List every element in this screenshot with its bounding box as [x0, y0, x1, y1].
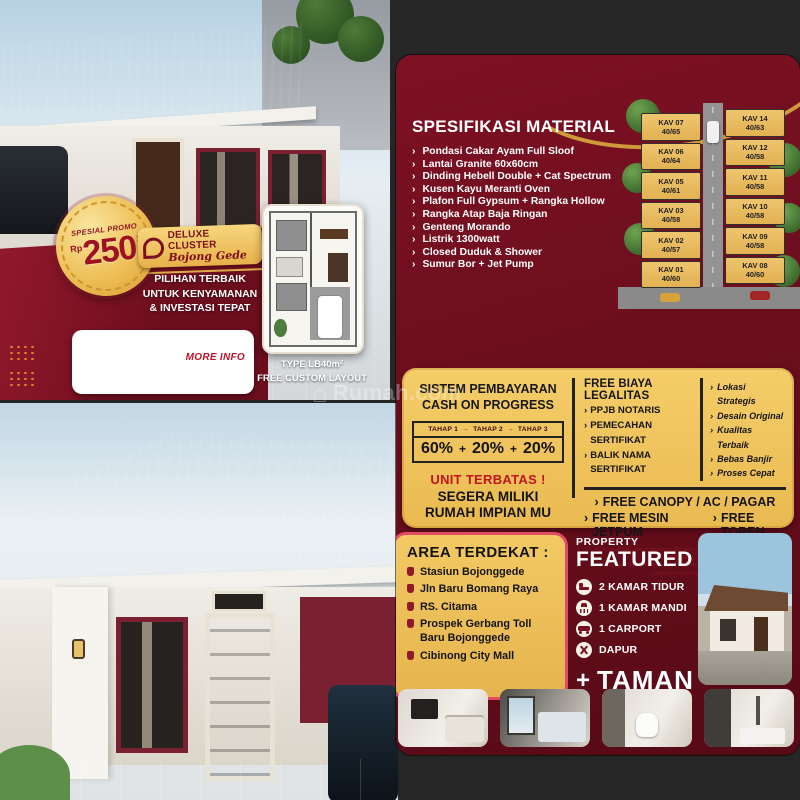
car-icon	[576, 621, 592, 637]
cta-line2: RUMAH IMPIAN MU	[412, 505, 564, 521]
feature-row: 1 KAMAR MANDI	[576, 600, 704, 616]
lot-kav: KAV 14	[742, 114, 767, 123]
nearby-area-text: Stasiun Bojonggede	[420, 565, 524, 579]
brand-banner: DELUXE CLUSTER Bojong Gede	[137, 224, 262, 268]
feature-row: 1 CARPORT	[576, 621, 704, 637]
house-door	[205, 613, 275, 781]
floorplan-caption: TYPE LB40m² FREE CUSTOM LAYOUT	[250, 358, 374, 386]
contact-info-box: MORE INFO	[72, 330, 254, 394]
lot-kav: KAV 07	[658, 118, 683, 127]
legal-item-text: PEMECAHAN SERTIFIKAT	[590, 419, 695, 449]
lot-size: 40/60	[746, 270, 765, 279]
spec-item-text: Lantai Granite 60x60cm	[422, 159, 538, 172]
specs-poster: SPESIFIKASI MATERIAL › Pondasi Cakar Aya…	[396, 55, 800, 755]
floorplan-bed	[276, 220, 307, 251]
siteplan-lot: KAV 09 40/58	[725, 227, 785, 255]
siteplan-road-horizontal	[618, 287, 800, 309]
interior-photos-row	[398, 689, 794, 747]
lot-kav: KAV 01	[658, 265, 683, 274]
spec-item-text: Genteng Morando	[422, 222, 510, 235]
lot-kav: KAV 03	[658, 206, 683, 215]
stage-label: TAHAP 1	[428, 426, 458, 433]
divider	[584, 487, 786, 490]
spec-item-text: Listrik 1300watt	[422, 234, 499, 247]
spec-item: › Plafon Full Gypsum + Rangka Hollow	[412, 196, 644, 209]
legal-item-text: PPJB NOTARIS	[590, 404, 660, 419]
nearby-area-item: Jln Baru Bomang Raya	[407, 582, 557, 596]
floorplan-car	[317, 295, 343, 339]
spec-list: › Pondasi Cakar Ayam Full Sloof › Lantai…	[412, 146, 644, 272]
chevron-bullet-icon: ›	[584, 511, 588, 539]
photo-roof	[704, 585, 788, 611]
floorplan-plant	[274, 319, 287, 337]
siteplan-lot: KAV 03 40/58	[641, 202, 701, 230]
floorplan-wall	[310, 213, 312, 287]
lot-size: 40/60	[662, 274, 681, 283]
advantage-item: › Kualitas Terbaik	[710, 423, 786, 452]
tagline-line: & INVESTASI TEPAT	[134, 301, 266, 316]
spec-item-text: Plafon Full Gypsum + Rangka Hollow	[422, 196, 604, 209]
lot-kav: KAV 06	[658, 147, 683, 156]
lot-size: 40/58	[746, 182, 765, 191]
advantage-item: › Bebas Banjir	[710, 452, 786, 466]
stage-label: TAHAP 3	[518, 426, 548, 433]
lot-size: 40/58	[746, 211, 765, 220]
spec-item-text: Dinding Hebell Double + Cat Spectrum	[422, 171, 611, 184]
lot-size: 40/63	[746, 123, 765, 132]
map-pin-icon	[407, 651, 414, 660]
feature-row: 2 KAMAR TIDUR	[576, 579, 704, 595]
lot-size: 40/57	[662, 245, 681, 254]
siteplan-lot: KAV 07 40/65	[641, 113, 701, 141]
nearby-area-title: AREA TERDEKAT :	[407, 544, 557, 561]
spec-item: › Dinding Hebell Double + Cat Spectrum	[412, 171, 644, 184]
property-featured-section: PROPERTY FEATURED 2 KAMAR TIDUR 1 KAMAR …	[576, 536, 704, 696]
chevron-bullet-icon: ›	[710, 466, 713, 480]
payment-title-line2: CASH ON PROGRESS	[412, 397, 564, 413]
badge-number: 250	[81, 231, 138, 270]
advantages-list: › Lokasi Strategis › Desain Original	[710, 380, 786, 481]
plus-icon: +	[459, 442, 466, 456]
spec-item: › Pondasi Cakar Ayam Full Sloof	[412, 146, 644, 159]
siteplan-lot: KAV 02 40/57	[641, 231, 701, 259]
photo-window	[720, 619, 736, 641]
freebies-item2: FREE MESIN JETPUM	[592, 511, 699, 539]
spec-item: › Kusen Kayu Meranti Oven	[412, 184, 644, 197]
chevron-bullet-icon: ›	[710, 423, 713, 452]
advantage-item-text: Kualitas Terbaik	[717, 423, 786, 452]
nearby-area-text: RS. Citama	[420, 600, 477, 614]
chevron-bullet-icon: ›	[412, 234, 415, 247]
photo-exterior	[698, 533, 792, 685]
chevron-bullet-icon: ›	[584, 449, 587, 479]
photo-ground	[698, 651, 792, 685]
lot-kav: KAV 11	[743, 173, 768, 182]
nearby-area-item: RS. Citama	[407, 600, 557, 614]
siteplan-lots-right: KAV 14 40/63 KAV 12 40/58 KAV 11 40/58	[725, 109, 785, 284]
lot-size: 40/61	[662, 186, 681, 195]
car-icon	[707, 121, 719, 143]
advantage-item: › Desain Original	[710, 409, 786, 423]
map-pin-icon	[407, 567, 414, 576]
advantage-item-text: Bebas Banjir	[717, 452, 772, 466]
stage-label: TAHAP 2	[473, 426, 503, 433]
house-pillar	[52, 587, 108, 779]
siteplan-lot: KAV 14 40/63	[725, 109, 785, 137]
chevron-bullet-icon: ›	[710, 380, 713, 409]
render-house-bottom	[0, 403, 398, 800]
feature-row: DAPUR	[576, 642, 704, 658]
spec-item: › Genteng Morando	[412, 222, 644, 235]
render-house-top: SPESIAL PROMO Rp 250 JUTAAN DELUXE CLUST…	[0, 0, 390, 400]
spec-item: › Listrik 1300watt	[412, 234, 644, 247]
lot-size: 40/64	[662, 156, 681, 165]
spec-item: › Closed Duduk & Shower	[412, 247, 644, 260]
legal-item: › PPJB NOTARIS	[584, 404, 695, 419]
chevron-bullet-icon: ›	[412, 209, 415, 222]
chevron-bullet-icon: ›	[412, 171, 415, 184]
lot-size: 40/58	[746, 241, 765, 250]
nearby-area-item: Stasiun Bojonggede	[407, 565, 557, 579]
advantages-section: › Lokasi Strategis › Desain Original	[700, 378, 786, 481]
chevron-bullet-icon: ›	[584, 404, 587, 419]
featured-title: FEATURED	[576, 548, 704, 572]
spec-item: › Rangka Atap Baja Ringan	[412, 209, 644, 222]
brand-logo-icon	[143, 237, 165, 259]
limited-units-label: UNIT TERBATAS !	[412, 472, 564, 487]
tagline-line: UNTUK KENYAMANAN	[134, 287, 266, 302]
stage-percent: 60%	[421, 440, 453, 458]
plus-icon: +	[510, 442, 517, 456]
transom-window	[212, 591, 266, 612]
cta-line1: SEGERA MILIKI	[412, 489, 564, 505]
nearby-area-box: AREA TERDEKAT : Stasiun Bojonggede Jln B…	[396, 532, 568, 700]
photo-door	[754, 617, 768, 651]
floorplan-note: FREE CUSTOM LAYOUT	[250, 372, 374, 386]
siteplan-lot: KAV 05 40/61	[641, 172, 701, 200]
chevron-bullet-icon: ›	[412, 184, 415, 197]
photo-bedroom-1	[398, 689, 488, 747]
lot-kav: KAV 10	[742, 202, 767, 211]
stage-percent: 20%	[472, 440, 504, 458]
lot-size: 40/58	[662, 215, 681, 224]
chevron-bullet-icon: ›	[584, 419, 587, 449]
nearby-area-item: Prospek Gerbang Toll Baru Bojonggede	[407, 617, 557, 645]
legal-item-text: BALIK NAMA SERTIFIKAT	[590, 449, 695, 479]
photo-bedroom-2	[500, 689, 590, 747]
payment-section: SISTEM PEMBAYARAN CASH ON PROGRESS TAHAP…	[412, 381, 564, 521]
house-roof	[0, 431, 398, 581]
siteplan-lot: KAV 06 40/64	[641, 143, 701, 171]
siteplan-lots-left: KAV 07 40/65 KAV 06 40/64 KAV 05 40/61	[641, 113, 701, 288]
spec-section: SPESIFIKASI MATERIAL › Pondasi Cakar Aya…	[412, 117, 644, 272]
spec-item: › Lantai Granite 60x60cm	[412, 159, 644, 172]
advantage-item-text: Proses Cepat	[717, 466, 775, 480]
spec-item-text: Sumur Bor + Jet Pump	[422, 259, 533, 272]
flyer-canvas: SPESIAL PROMO Rp 250 JUTAAN DELUXE CLUST…	[0, 0, 800, 800]
legal-item: › BALIK NAMA SERTIFIKAT	[584, 449, 695, 479]
nearby-area-item: Cibinong City Mall	[407, 649, 557, 663]
decor-dots	[8, 370, 34, 388]
nearby-area-text: Cibinong City Mall	[420, 649, 514, 663]
chevron-bullet-icon: ›	[412, 222, 415, 235]
house-window	[116, 617, 188, 753]
legal-list: › PPJB NOTARIS › PEMECAHAN SERTIFIKAT	[584, 404, 695, 478]
floorplan-bath	[276, 257, 303, 277]
floorplan-sofa	[328, 253, 348, 282]
spec-item-text: Pondasi Cakar Ayam Full Sloof	[422, 146, 573, 159]
payment-title-line1: SISTEM PEMBAYARAN	[412, 381, 564, 397]
more-info-label: MORE INFO	[186, 352, 245, 363]
legal-title: FREE BIAYA LEGALITAS	[584, 378, 695, 402]
chevron-bullet-icon: ›	[595, 495, 599, 509]
floorplan-cabinet	[320, 229, 349, 240]
payment-box: SISTEM PEMBAYARAN CASH ON PROGRESS TAHAP…	[402, 368, 794, 528]
legal-section: FREE BIAYA LEGALITAS › PPJB NOTARIS ›	[584, 378, 695, 481]
car-icon	[750, 291, 770, 300]
spec-item-text: Closed Duduk & Shower	[422, 247, 542, 260]
chevron-bullet-icon: ›	[710, 452, 713, 466]
photo-bathroom-1	[602, 689, 692, 747]
legal-item: › PEMECAHAN SERTIFIKAT	[584, 419, 695, 449]
chevron-bullet-icon: ›	[710, 409, 713, 423]
chevron-bullet-icon: ›	[412, 196, 415, 209]
nearby-area-text: Prospek Gerbang Toll Baru Bojonggede	[420, 617, 557, 645]
payment-stages-table: TAHAP 1 → TAHAP 2 → TAHAP 3 60% + 20% + …	[412, 421, 564, 463]
tagline-line: PILIHAN TERBAIK	[134, 272, 266, 287]
spec-item-text: Kusen Kayu Meranti Oven	[422, 184, 550, 197]
chevron-bullet-icon: ›	[412, 247, 415, 260]
feature-label: 2 KAMAR TIDUR	[599, 581, 684, 593]
nearby-area-list: Stasiun Bojonggede Jln Baru Bomang Raya …	[407, 565, 557, 663]
advantage-item: › Proses Cepat	[710, 466, 786, 480]
siteplan-lot: KAV 10 40/58	[725, 198, 785, 226]
advantage-item: › Lokasi Strategis	[710, 380, 786, 409]
map-pin-icon	[407, 584, 414, 593]
decor-dots	[8, 344, 34, 362]
siteplan-map: KAV 07 40/65 KAV 06 40/64 KAV 05 40/61	[632, 103, 794, 313]
nearby-area-text: Jln Baru Bomang Raya	[420, 582, 538, 596]
advantage-item-text: Desain Original	[717, 409, 783, 423]
spec-item-text: Rangka Atap Baja Ringan	[422, 209, 547, 222]
map-pin-icon	[407, 619, 414, 628]
divider	[572, 378, 575, 498]
siteplan-lot: KAV 11 40/58	[725, 168, 785, 196]
bed-icon	[576, 579, 592, 595]
siteplan-lot: KAV 01 40/60	[641, 261, 701, 289]
spec-title: SPESIFIKASI MATERIAL	[412, 117, 644, 137]
lot-size: 40/65	[662, 127, 681, 136]
arrow-icon: →	[462, 426, 469, 433]
car-icon	[660, 293, 680, 302]
lot-size: 40/58	[746, 152, 765, 161]
floorplan-bed	[276, 283, 307, 311]
stage-percent: 20%	[523, 440, 555, 458]
tagline: PILIHAN TERBAIK UNTUK KENYAMANAN & INVES…	[134, 272, 266, 316]
photo-bathroom-2	[704, 689, 794, 747]
feature-label: DAPUR	[599, 644, 637, 656]
shower-icon	[576, 600, 592, 616]
wall-lamp-icon	[72, 639, 85, 659]
feature-label: 1 CARPORT	[599, 623, 661, 635]
featured-kicker: PROPERTY	[576, 536, 704, 548]
spec-item: › Sumur Bor + Jet Pump	[412, 259, 644, 272]
lot-kav: KAV 05	[658, 177, 683, 186]
floorplan-drawing	[269, 211, 357, 347]
chevron-bullet-icon: ›	[412, 159, 415, 172]
chevron-bullet-icon: ›	[412, 146, 415, 159]
lot-kav: KAV 02	[658, 236, 683, 245]
chevron-bullet-icon: ›	[412, 259, 415, 272]
advantage-item-text: Lokasi Strategis	[717, 380, 786, 409]
floorplan-type: TYPE LB40m²	[250, 358, 374, 372]
utensils-icon	[576, 642, 592, 658]
lot-kav: KAV 09	[742, 232, 767, 241]
feature-label: 1 KAMAR MANDI	[599, 602, 687, 614]
lot-kav: KAV 12	[742, 143, 767, 152]
badge-amount: Rp 250 JUTAAN	[69, 231, 144, 272]
lot-kav: KAV 08	[742, 261, 767, 270]
freebies-line1: FREE CANOPY / AC / PAGAR	[603, 495, 776, 509]
brand-subname: Bojong Gede	[168, 248, 257, 264]
map-pin-icon	[407, 602, 414, 611]
siteplan-lot: KAV 12 40/58	[725, 139, 785, 167]
siteplan-lot: KAV 08 40/60	[725, 257, 785, 285]
floorplan-card	[262, 204, 364, 354]
palm-tree-icon	[338, 16, 384, 62]
arrow-icon: →	[507, 426, 514, 433]
